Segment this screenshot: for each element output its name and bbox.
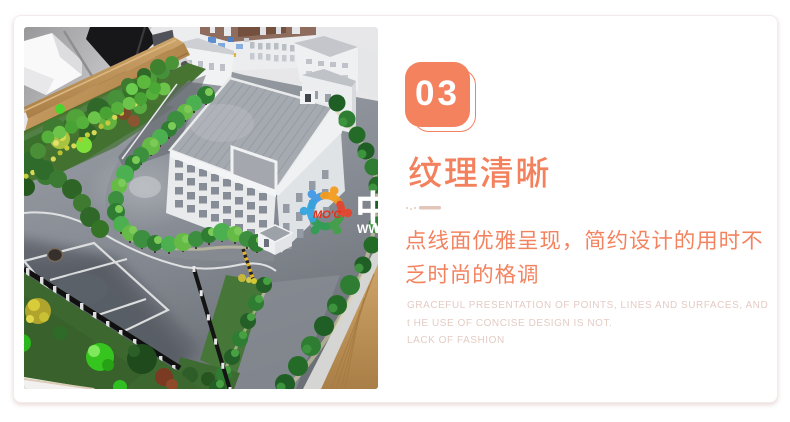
svg-text:MO'C: MO'C bbox=[313, 209, 342, 221]
